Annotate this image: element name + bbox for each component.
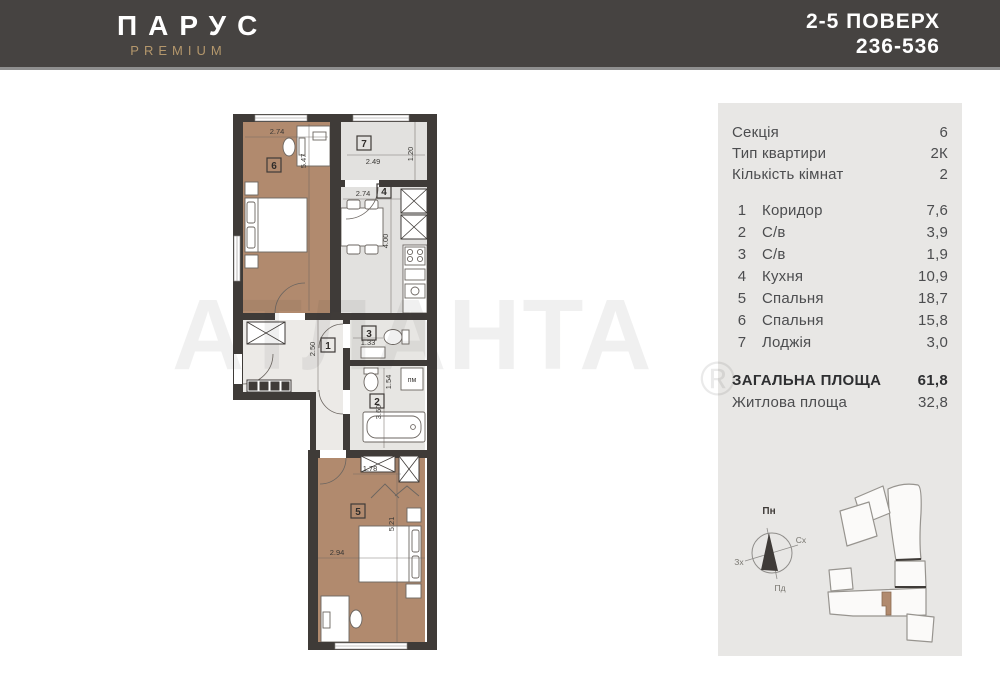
room-row: 7 Лоджія 3,0: [732, 332, 948, 354]
burner: [417, 256, 422, 261]
chair: [347, 245, 360, 254]
room-number-4: 4: [381, 187, 387, 198]
keyboard: [313, 132, 326, 140]
pillow: [412, 556, 419, 578]
room-area: 3,9: [927, 222, 948, 244]
dim-room6-width: 2.74: [270, 127, 285, 136]
washer-label: пм: [408, 377, 417, 384]
info-panel: Секція 6 Тип квартири 2К Кількість кімна…: [718, 103, 962, 656]
floor-plan-page: ПАРУС PREMIUM 2-5 ПОВЕРХ 236-536: [0, 0, 1000, 678]
section-value: 6: [939, 122, 948, 143]
apartment-number-range: 236-536: [806, 35, 940, 60]
room-name: Коридор: [752, 200, 927, 222]
building-footprint: [803, 475, 945, 653]
compass-south-label: Пд: [774, 583, 785, 593]
wall: [310, 400, 316, 450]
chair: [347, 200, 360, 209]
door-opening: [343, 324, 350, 348]
total-area-label: ЗАГАЛЬНА ПЛОЩА: [732, 370, 918, 392]
wall: [427, 114, 437, 650]
room-name: Спальня: [752, 310, 918, 332]
apartment-type-label: Тип квартири: [732, 143, 931, 164]
room-name: Лоджія: [752, 332, 927, 354]
room-name: С/в: [752, 244, 927, 266]
room-area: 3,0: [927, 332, 948, 354]
dim-loggia-depth: 1.20: [406, 147, 415, 162]
apartment-type-value: 2К: [931, 143, 948, 164]
floor-range: 2-5 ПОВЕРХ: [806, 10, 940, 35]
room-row: 3 С/в 1,9: [732, 244, 948, 266]
nightstand: [245, 255, 258, 268]
room-area: 10,9: [918, 266, 948, 288]
door-opening: [343, 390, 350, 414]
meta-row-section: Секція 6: [732, 122, 948, 143]
totals: ЗАГАЛЬНА ПЛОЩА 61,8 Житлова площа 32,8: [732, 370, 948, 414]
dim-kitchen-height: 4.00: [381, 234, 390, 249]
living-area-value: 32,8: [918, 392, 948, 414]
room-number-1: 1: [325, 341, 331, 352]
room-list: 1 Коридор 7,6 2 С/в 3,9 3 С/в 1,9 4 Кухн…: [732, 200, 948, 354]
section-label: Секція: [732, 122, 939, 143]
dim-room5-height: 5.21: [387, 517, 396, 532]
living-area-row: Житлова площа 32,8: [732, 392, 948, 414]
dim-room5-width: 2.94: [330, 548, 345, 557]
dim-kitchen-width: 2.74: [356, 189, 371, 198]
room-area: 15,8: [918, 310, 948, 332]
oven: [405, 269, 425, 280]
wall: [233, 313, 427, 320]
brand-name: ПАРУС: [106, 12, 246, 40]
dim-bath2-width: 1.54: [384, 375, 393, 390]
room-num: 3: [732, 244, 752, 266]
entrance-opening: [234, 354, 242, 384]
toilet-bowl: [364, 373, 378, 391]
nightstand: [406, 584, 421, 598]
dim-loggia-width: 2.49: [366, 157, 381, 166]
brand-logo: ПАРУС PREMIUM: [106, 12, 246, 57]
living-area-label: Житлова площа: [732, 392, 918, 414]
rooms-count-value: 2: [939, 164, 948, 185]
chair: [283, 138, 295, 156]
dim-corridor: 2.50: [308, 342, 317, 357]
compass-north-label: Пн: [762, 506, 775, 517]
room-num: 1: [732, 200, 752, 222]
compass: Пн Сх Зх Пд: [732, 501, 808, 593]
toilet-bowl: [384, 330, 402, 345]
room-num: 4: [732, 266, 752, 288]
meta-row-rooms-count: Кількість кімнат 2: [732, 164, 948, 185]
wall: [233, 114, 243, 321]
room-name: Спальня: [752, 288, 918, 310]
room-area: 7,6: [927, 200, 948, 222]
dining-table: [341, 208, 383, 246]
header-bar: ПАРУС PREMIUM 2-5 ПОВЕРХ 236-536: [0, 0, 1000, 70]
entry-step: [271, 382, 279, 390]
entry-step: [249, 382, 257, 390]
burner: [407, 249, 412, 254]
brand-premium-label: PREMIUM: [106, 44, 246, 57]
header-apartment-info: 2-5 ПОВЕРХ 236-536: [806, 10, 940, 60]
floor-plan: пм: [225, 106, 440, 666]
room-num: 2: [732, 222, 752, 244]
room-number-3: 3: [366, 329, 372, 340]
room-number-5: 5: [355, 507, 361, 518]
chair: [365, 200, 378, 209]
wall: [308, 450, 318, 650]
room-num: 6: [732, 310, 752, 332]
room-row: 1 Коридор 7,6: [732, 200, 948, 222]
building-sections: [828, 484, 934, 642]
total-area-row: ЗАГАЛЬНА ПЛОЩА 61,8: [732, 370, 948, 392]
room-number-6: 6: [271, 161, 277, 172]
sink: [411, 287, 419, 295]
total-area-value: 61,8: [918, 370, 948, 392]
washbasin: [361, 347, 385, 358]
burner: [417, 249, 422, 254]
room-row: 4 Кухня 10,9: [732, 266, 948, 288]
meta-row-type: Тип квартири 2К: [732, 143, 948, 164]
wall: [330, 122, 341, 313]
door-opening: [320, 450, 346, 458]
pillow: [247, 227, 255, 248]
nightstand: [245, 182, 258, 195]
room-row: 2 С/в 3,9: [732, 222, 948, 244]
drain: [411, 425, 416, 430]
chair: [350, 610, 362, 628]
toilet-tank: [402, 330, 409, 344]
room-number-7: 7: [361, 139, 367, 150]
door-opening: [345, 180, 379, 187]
compass-west-label: Зх: [734, 557, 744, 567]
entry-step: [260, 382, 268, 390]
room-area: 1,9: [927, 244, 948, 266]
room-name: Кухня: [752, 266, 918, 288]
door-opening: [275, 313, 305, 320]
room-name: С/в: [752, 222, 927, 244]
wall: [233, 392, 316, 400]
room-number-2: 2: [374, 397, 380, 408]
chair: [365, 245, 378, 254]
entry-step: [282, 382, 289, 390]
room-num: 5: [732, 288, 752, 310]
pillow: [412, 530, 419, 552]
wall: [350, 360, 427, 366]
room-area: 18,7: [918, 288, 948, 310]
rooms-count-label: Кількість кімнат: [732, 164, 939, 185]
dim-room5-niche: 1.78: [363, 464, 378, 473]
room-num: 7: [732, 332, 752, 354]
monitor: [299, 138, 305, 155]
dim-room6-height: 5.47: [299, 154, 308, 169]
room-row: 6 Спальня 15,8: [732, 310, 948, 332]
room-row: 5 Спальня 18,7: [732, 288, 948, 310]
nightstand: [407, 508, 421, 522]
burner: [407, 256, 412, 261]
pillow: [247, 202, 255, 223]
monitor: [323, 612, 330, 628]
